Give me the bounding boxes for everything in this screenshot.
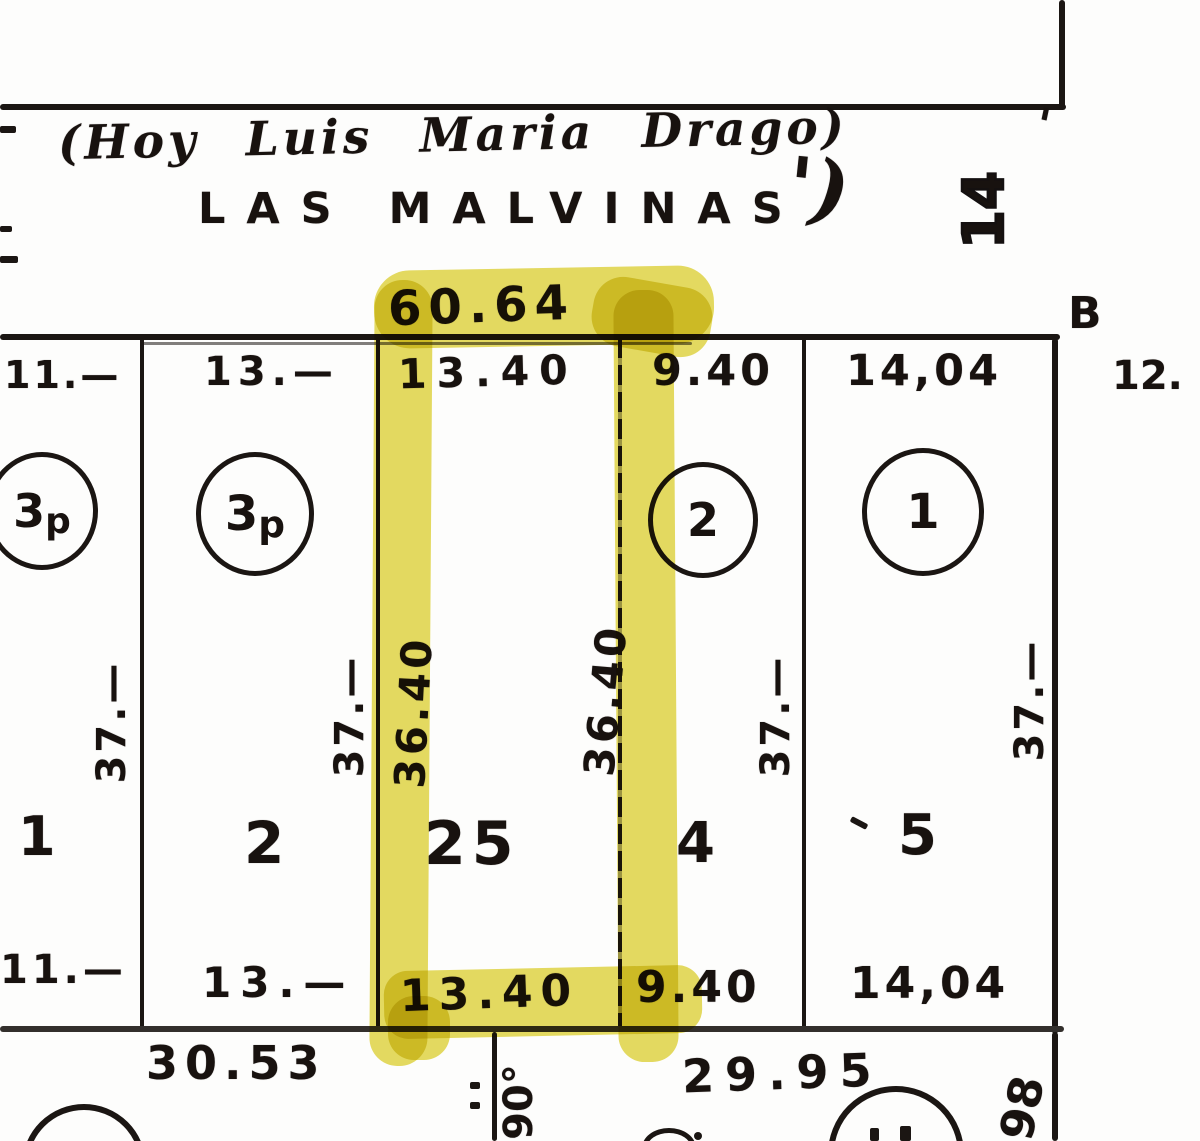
block-front-line [0, 334, 1060, 340]
zone-label-sub: p [258, 502, 285, 546]
lot-25-front-measure: 13.40 [397, 350, 578, 396]
stray-tick [850, 816, 869, 830]
lot-25-rear-measure: 13.40 [399, 969, 580, 1019]
lot-divider-1 [140, 338, 144, 1030]
zone-label: 2 [687, 493, 719, 547]
lot-2-depth-measure: 37.— [330, 655, 370, 778]
street-corner-vertical-line [1059, 0, 1065, 108]
lot-1-depth-measure: 37.— [92, 661, 132, 784]
clipped-digit-stub [870, 1128, 879, 1141]
lot-4-zone-circle: 2 [648, 462, 758, 578]
lot-1-number: 1 [18, 810, 56, 864]
ink-dot [694, 1132, 702, 1140]
corner-angle-annotation: 90° [499, 1064, 539, 1140]
dash-tick [470, 1102, 480, 1109]
street-name: LAS MALVINAS [198, 188, 804, 231]
lot-2-front-measure: 13.— [204, 352, 339, 392]
lot-5-number: 5 [898, 808, 937, 864]
lot-25-number: 25 [424, 814, 520, 874]
left-edge-fragment [0, 256, 18, 263]
left-edge-fragment [0, 226, 12, 232]
lot-divider-4 [802, 338, 806, 1030]
lot-2-number: 2 [244, 814, 284, 872]
zone-label: 3 [225, 486, 258, 542]
lot-2-rear-measure: 13.— [202, 962, 354, 1004]
clipped-digit-stub [900, 1126, 911, 1141]
adjacent-lot-measure-right: 12. [1112, 356, 1183, 396]
zone-label: 1 [906, 484, 939, 540]
block-front-line-overdraw [140, 342, 692, 345]
lot-25-depth-measure-right: 36.40 [578, 622, 633, 778]
lot-1-front-measure: 11.— [4, 356, 121, 394]
dash-tick [470, 1082, 480, 1089]
zone-label-sub: p [45, 501, 71, 542]
lot-5-rear-measure: 14,04 [850, 962, 1009, 1006]
rear-block-measure-right: 29.95 [681, 1047, 883, 1100]
lot-5-front-measure: 14,04 [846, 350, 1002, 393]
block-rear-line [0, 1026, 1064, 1032]
corner-angle-annotation-right: 98 [993, 1072, 1051, 1141]
lot-25-left-boundary [376, 338, 380, 1032]
lot-1-zone-circle: 3p [0, 452, 98, 570]
lot-4-number: 4 [676, 816, 715, 872]
lot-4-rear-measure: 9.40 [636, 966, 761, 1010]
lot-5-depth-measure: 37.— [1010, 639, 1050, 762]
cadastral-plat-map: (Hoy Luis Maria Drago) LAS MALVINAS ') '… [0, 0, 1200, 1141]
lot-4-front-measure: 9.40 [652, 350, 774, 393]
block-corner-label: B [1068, 292, 1102, 336]
block-frontage-total: 60.64 [387, 279, 575, 333]
lot-25-depth-measure-left: 36.40 [389, 635, 439, 790]
next-row-zone-circle-partial [22, 1104, 146, 1141]
street-name-closing-paren: ') [784, 147, 853, 231]
street-former-name: (Hoy Luis Maria Drago) [58, 104, 849, 168]
lot-5-zone-circle: 1 [862, 448, 984, 576]
lot-4-depth-measure: 37.— [756, 655, 796, 778]
lot-1-rear-measure: 11.— [0, 950, 127, 990]
zone-label: 3 [13, 484, 45, 538]
left-edge-fragment [0, 126, 16, 133]
rear-block-measure-left: 30.53 [146, 1040, 327, 1086]
next-row-mark-partial [642, 1128, 696, 1141]
cross-street-number: 14 [957, 171, 1013, 249]
lot-2-zone-circle: 3p [196, 452, 314, 576]
